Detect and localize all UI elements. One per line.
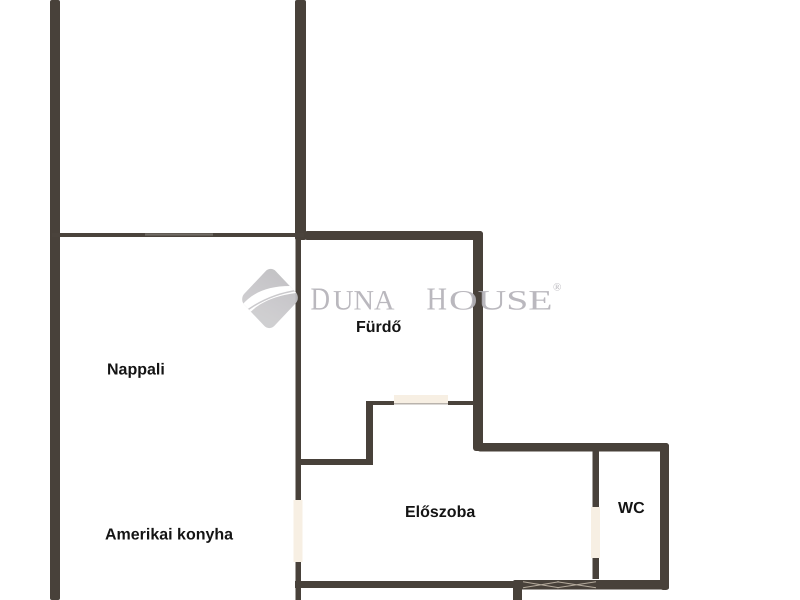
svg-text:D: D [311, 281, 331, 317]
svg-text:H: H [427, 281, 448, 317]
svg-text:OUSE: OUSE [449, 286, 553, 317]
svg-text:Amerikai konyha: Amerikai konyha [105, 527, 233, 544]
svg-text:Fürdő: Fürdő [356, 319, 402, 336]
svg-text:®: ® [553, 282, 561, 294]
svg-text:UNA: UNA [333, 286, 395, 317]
svg-text:Előszoba: Előszoba [405, 504, 475, 521]
svg-text:WC: WC [618, 500, 645, 517]
svg-text:Nappali: Nappali [107, 362, 165, 379]
